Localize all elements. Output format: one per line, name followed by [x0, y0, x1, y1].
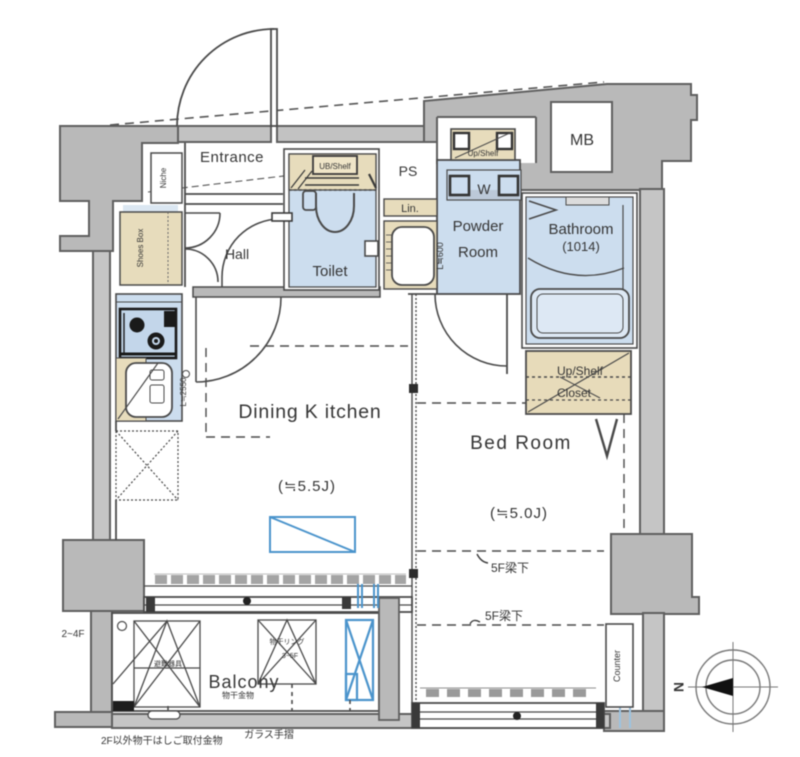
svg-text:Closet: Closet	[557, 386, 592, 400]
svg-text:Toilet: Toilet	[312, 263, 348, 280]
svg-text:L≒600: L≒600	[435, 242, 445, 270]
svg-text:Bed Room: Bed Room	[470, 433, 572, 454]
svg-text:Dining K itchen: Dining K itchen	[238, 401, 381, 423]
svg-text:Room: Room	[458, 244, 498, 261]
svg-text:Up/Shelf: Up/Shelf	[557, 364, 604, 378]
svg-text:Entrance: Entrance	[200, 149, 264, 166]
svg-text:ガラス手摺: ガラス手摺	[244, 728, 294, 741]
svg-text:物干金物: 物干金物	[222, 690, 254, 700]
svg-text:PS: PS	[399, 163, 418, 179]
svg-text:(≒5.0J): (≒5.0J)	[490, 505, 548, 522]
svg-text:MB: MB	[570, 132, 594, 149]
svg-text:5F梁下: 5F梁下	[491, 560, 529, 575]
svg-text:Niche: Niche	[159, 167, 168, 188]
svg-text:Shoes Box: Shoes Box	[136, 229, 145, 268]
svg-text:3~5F: 3~5F	[282, 653, 298, 660]
svg-text:Powder: Powder	[453, 218, 504, 235]
svg-text:N: N	[671, 682, 687, 692]
svg-text:UB/Shelf: UB/Shelf	[319, 162, 351, 171]
svg-text:Hall: Hall	[225, 246, 249, 262]
svg-text:(1014): (1014)	[562, 239, 600, 254]
svg-text:Counter: Counter	[612, 650, 622, 682]
svg-text:Up/Shelf: Up/Shelf	[468, 149, 499, 158]
svg-text:Balcony: Balcony	[208, 672, 279, 692]
svg-text:Bathroom: Bathroom	[548, 221, 613, 238]
svg-text:5F梁下: 5F梁下	[485, 608, 523, 623]
svg-text:2F以外物干はしご取付金物: 2F以外物干はしご取付金物	[101, 734, 223, 747]
svg-text:L≒2550: L≒2550	[179, 377, 188, 407]
svg-text:(≒5.5J): (≒5.5J)	[278, 478, 336, 495]
svg-text:避難器具: 避難器具	[154, 659, 182, 668]
svg-text:物干リング: 物干リング	[270, 637, 305, 646]
svg-text:Lin.: Lin.	[401, 203, 419, 215]
svg-text:2~4F: 2~4F	[61, 629, 84, 640]
svg-text:W: W	[477, 181, 491, 197]
